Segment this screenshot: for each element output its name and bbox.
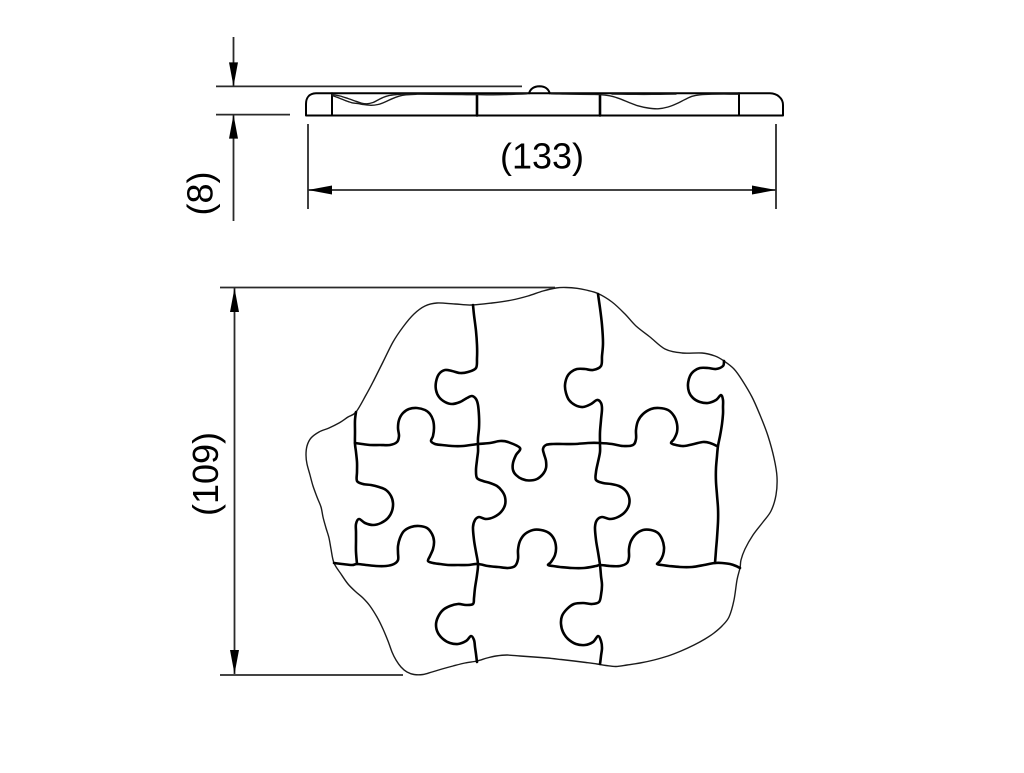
svg-text:(109): (109) <box>185 432 226 516</box>
svg-text:(8): (8) <box>179 172 220 216</box>
svg-text:(133): (133) <box>500 136 584 177</box>
